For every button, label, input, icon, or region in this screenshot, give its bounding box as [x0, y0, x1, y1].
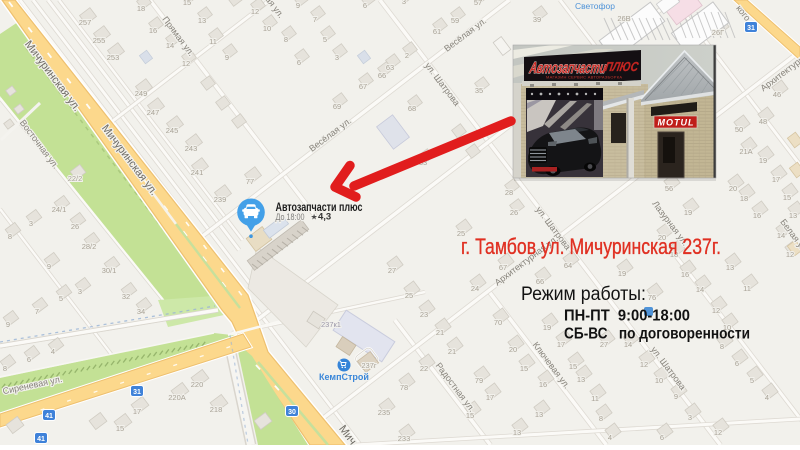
svg-text:21: 21	[448, 347, 456, 356]
svg-text:61: 61	[433, 27, 441, 36]
svg-text:255: 255	[93, 36, 106, 45]
svg-text:68: 68	[408, 104, 416, 113]
svg-text:26В: 26В	[617, 14, 630, 23]
svg-text:7: 7	[313, 15, 317, 24]
svg-text:243: 243	[185, 144, 198, 153]
svg-text:3: 3	[688, 413, 692, 422]
svg-text:ПН-ПТ 9:00-18:00: ПН-ПТ 9:00-18:00	[564, 308, 690, 325]
svg-text:9: 9	[674, 392, 678, 401]
svg-text:30: 30	[288, 409, 296, 416]
svg-text:8: 8	[599, 414, 603, 423]
svg-text:26: 26	[71, 222, 79, 231]
svg-text:14: 14	[166, 41, 174, 50]
svg-text:15: 15	[520, 364, 528, 373]
svg-text:10: 10	[655, 376, 663, 385]
svg-text:19: 19	[759, 156, 767, 165]
svg-text:СБ-ВС по договоренности: СБ-ВС по договоренности	[564, 326, 750, 343]
svg-text:31: 31	[747, 25, 755, 32]
svg-text:79: 79	[475, 376, 483, 385]
svg-text:237к1: 237к1	[321, 320, 341, 329]
svg-text:253: 253	[107, 53, 120, 62]
svg-text:5: 5	[750, 376, 754, 385]
svg-text:66: 66	[378, 71, 386, 80]
svg-text:18: 18	[137, 4, 145, 13]
svg-text:78: 78	[400, 383, 408, 392]
svg-text:6: 6	[297, 58, 301, 67]
svg-text:3: 3	[78, 287, 82, 296]
svg-text:26Г: 26Г	[712, 28, 724, 37]
svg-text:4: 4	[765, 393, 769, 402]
svg-text:3: 3	[29, 219, 33, 228]
svg-text:20: 20	[509, 345, 517, 354]
svg-text:До 18:00: До 18:00	[276, 212, 305, 223]
svg-text:27: 27	[388, 266, 396, 275]
svg-text:6: 6	[735, 359, 739, 368]
svg-text:3: 3	[335, 53, 339, 62]
svg-text:5: 5	[323, 35, 327, 44]
svg-text:220: 220	[191, 380, 204, 389]
svg-text:9: 9	[225, 53, 229, 62]
svg-text:МАГАЗИН СЕРВИС АВТОРАЗБОРКА: МАГАЗИН СЕРВИС АВТОРАЗБОРКА	[546, 75, 622, 80]
svg-text:12: 12	[182, 59, 190, 68]
svg-text:257: 257	[79, 18, 92, 27]
svg-text:20: 20	[729, 184, 737, 193]
svg-text:MOTUL: MOTUL	[658, 118, 694, 128]
svg-text:41: 41	[37, 436, 45, 443]
svg-text:3: 3	[402, 0, 406, 6]
svg-text:9: 9	[296, 1, 300, 10]
svg-text:12: 12	[786, 250, 794, 259]
svg-text:13: 13	[535, 410, 543, 419]
svg-text:15: 15	[783, 193, 791, 202]
svg-text:16: 16	[149, 26, 157, 35]
svg-text:245: 245	[166, 126, 179, 135]
svg-text:6: 6	[363, 1, 367, 10]
svg-text:237г: 237г	[361, 361, 377, 370]
svg-text:56: 56	[665, 184, 673, 193]
svg-text:28: 28	[505, 188, 513, 197]
svg-text:13: 13	[513, 428, 521, 437]
svg-text:241: 241	[191, 168, 204, 177]
svg-text:11: 11	[743, 284, 751, 293]
svg-text:2: 2	[405, 51, 409, 60]
svg-text:15: 15	[116, 424, 124, 433]
svg-text:70: 70	[494, 318, 502, 327]
svg-text:41: 41	[45, 413, 53, 420]
svg-text:247: 247	[147, 108, 160, 117]
svg-text:14: 14	[777, 231, 785, 240]
svg-text:69: 69	[333, 102, 341, 111]
svg-text:57: 57	[474, 0, 482, 7]
svg-text:24/1: 24/1	[52, 205, 67, 214]
svg-text:23: 23	[420, 310, 428, 319]
svg-text:64: 64	[564, 261, 572, 270]
svg-text:13: 13	[789, 211, 797, 220]
svg-text:18: 18	[740, 194, 748, 203]
svg-text:5: 5	[59, 294, 63, 303]
svg-text:39: 39	[533, 15, 541, 24]
svg-text:КемпСтрой: КемпСтрой	[319, 372, 369, 382]
svg-text:24: 24	[471, 284, 479, 293]
svg-text:26: 26	[510, 208, 518, 217]
svg-text:ПЛЮС: ПЛЮС	[604, 59, 640, 74]
svg-text:249: 249	[135, 89, 148, 98]
svg-text:6: 6	[660, 433, 664, 442]
svg-text:28/2: 28/2	[82, 242, 97, 251]
svg-text:13: 13	[577, 375, 585, 384]
svg-text:22: 22	[420, 364, 428, 373]
svg-text:50: 50	[735, 125, 743, 134]
svg-text:Режим работы:: Режим работы:	[521, 284, 646, 305]
svg-text:Светофор: Светофор	[575, 1, 615, 11]
svg-text:8: 8	[8, 232, 12, 241]
svg-text:22/2: 22/2	[68, 174, 83, 183]
svg-text:21: 21	[436, 328, 444, 337]
svg-text:11: 11	[209, 37, 217, 46]
svg-text:15: 15	[569, 362, 577, 371]
svg-text:19: 19	[684, 208, 692, 217]
svg-text:13: 13	[726, 263, 734, 272]
svg-text:4: 4	[51, 347, 55, 356]
svg-text:6: 6	[27, 355, 31, 364]
svg-text:10: 10	[263, 24, 271, 33]
svg-text:218: 218	[210, 405, 223, 414]
svg-text:4,3: 4,3	[318, 212, 331, 223]
svg-text:63: 63	[386, 63, 394, 72]
svg-text:235: 235	[378, 408, 391, 417]
svg-text:4: 4	[608, 433, 612, 442]
svg-text:19: 19	[618, 269, 626, 278]
svg-text:16: 16	[539, 380, 547, 389]
svg-text:12: 12	[712, 306, 720, 315]
svg-text:7: 7	[35, 307, 39, 316]
svg-text:220А: 220А	[168, 393, 186, 402]
svg-text:8: 8	[720, 342, 724, 351]
svg-text:17: 17	[486, 393, 494, 402]
svg-text:25: 25	[405, 291, 413, 300]
svg-text:16: 16	[753, 211, 761, 220]
svg-text:★: ★	[311, 213, 318, 222]
svg-text:32: 32	[122, 292, 130, 301]
svg-text:12: 12	[714, 428, 722, 437]
svg-text:9: 9	[6, 320, 10, 329]
svg-text:77: 77	[246, 177, 254, 186]
svg-text:21А: 21А	[739, 147, 752, 156]
svg-text:8: 8	[284, 35, 288, 44]
svg-text:13: 13	[198, 16, 206, 25]
svg-text:35: 35	[475, 86, 483, 95]
svg-text:67: 67	[359, 82, 367, 91]
svg-text:59: 59	[451, 16, 459, 25]
svg-text:19: 19	[543, 323, 551, 332]
svg-text:31: 31	[133, 389, 141, 396]
svg-text:17: 17	[772, 175, 780, 184]
svg-text:15: 15	[183, 0, 191, 7]
svg-text:14: 14	[696, 285, 704, 294]
svg-text:46: 46	[773, 90, 781, 99]
svg-text:76: 76	[648, 293, 656, 302]
svg-text:34: 34	[137, 307, 145, 316]
svg-text:8: 8	[3, 364, 7, 373]
svg-text:239: 239	[214, 195, 227, 204]
svg-text:30/1: 30/1	[102, 266, 117, 275]
svg-text:17: 17	[133, 407, 141, 416]
svg-text:48: 48	[759, 117, 767, 126]
svg-text:12: 12	[640, 360, 648, 369]
svg-text:16: 16	[681, 270, 689, 279]
svg-text:9: 9	[47, 262, 51, 271]
svg-text:12: 12	[251, 7, 259, 16]
svg-text:г. Тамбов ул. Мичуринская 237г: г. Тамбов ул. Мичуринская 237г.	[461, 234, 721, 259]
svg-text:11: 11	[591, 394, 599, 403]
svg-text:233: 233	[398, 434, 411, 443]
